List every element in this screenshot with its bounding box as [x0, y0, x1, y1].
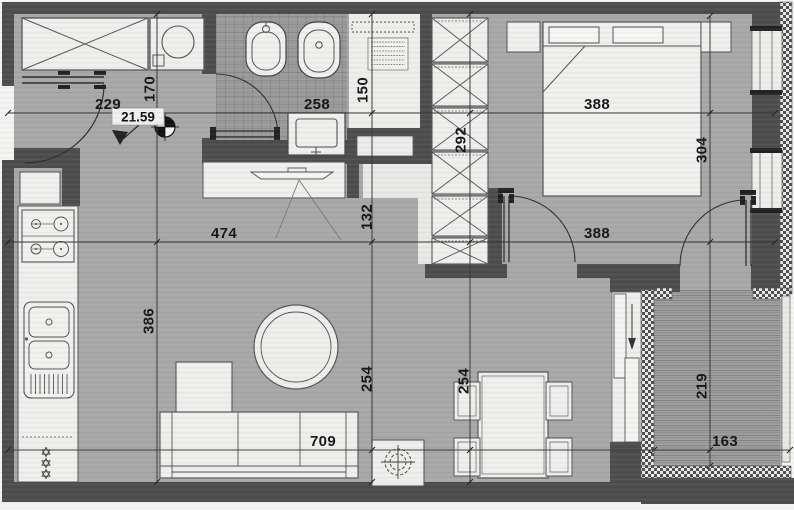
shower-note-block	[368, 38, 408, 70]
kitchen-sink-icon	[24, 302, 74, 398]
washing-machine-icon	[150, 18, 204, 70]
bidet-icon	[246, 22, 286, 76]
nightstand-left	[507, 22, 540, 52]
dim-entry-depth-label: 170	[141, 76, 158, 102]
dim-entry-width-label: 229	[95, 96, 121, 113]
nightstand-right	[701, 22, 731, 52]
dim-balcony-depth-label: 219	[693, 373, 710, 399]
balcony-sliding-door	[612, 292, 641, 442]
dim-bath-width-label: 258	[304, 96, 330, 113]
dim-living-span-label: 709	[310, 433, 336, 450]
dim-balcony-width-label: 163	[712, 433, 738, 450]
dim-console-offset-label: 132	[358, 204, 375, 230]
pillow	[549, 27, 599, 43]
dim-closet-run-label: 292	[452, 127, 469, 153]
coffee-table-icon	[254, 305, 338, 389]
shower-room-floor	[349, 14, 420, 128]
duct-shaft	[357, 136, 413, 156]
bed-icon	[543, 22, 701, 196]
dim-dining-zone-label: 254	[455, 368, 472, 394]
dim-shower-width-label: 150	[354, 77, 371, 103]
area-label: 21.59	[121, 110, 155, 125]
dim-sofa-zone-label: 254	[358, 366, 375, 392]
floor-plan-svg: 229 170 21.59 258 150 292 388 304 474 38…	[0, 0, 794, 510]
kitchen-oven	[20, 172, 60, 204]
balcony-railing	[782, 296, 790, 462]
washbasin-icon	[288, 113, 345, 157]
dim-living-width-label: 474	[211, 225, 237, 242]
dim-kitchen-run-label: 386	[140, 308, 157, 334]
kitchen-stove-icon	[22, 210, 74, 262]
dim-bedroom-depth-label: 304	[693, 137, 710, 163]
dim-bed-width-label: 388	[584, 96, 610, 113]
wardrobe-icon	[22, 18, 148, 70]
floor-drain-icon	[372, 440, 424, 486]
toilet-icon	[298, 22, 340, 78]
window-top	[750, 26, 782, 95]
pillow	[613, 27, 663, 43]
dim-bedroom-opening-label: 388	[584, 225, 610, 242]
dining-table-icon	[478, 372, 548, 478]
